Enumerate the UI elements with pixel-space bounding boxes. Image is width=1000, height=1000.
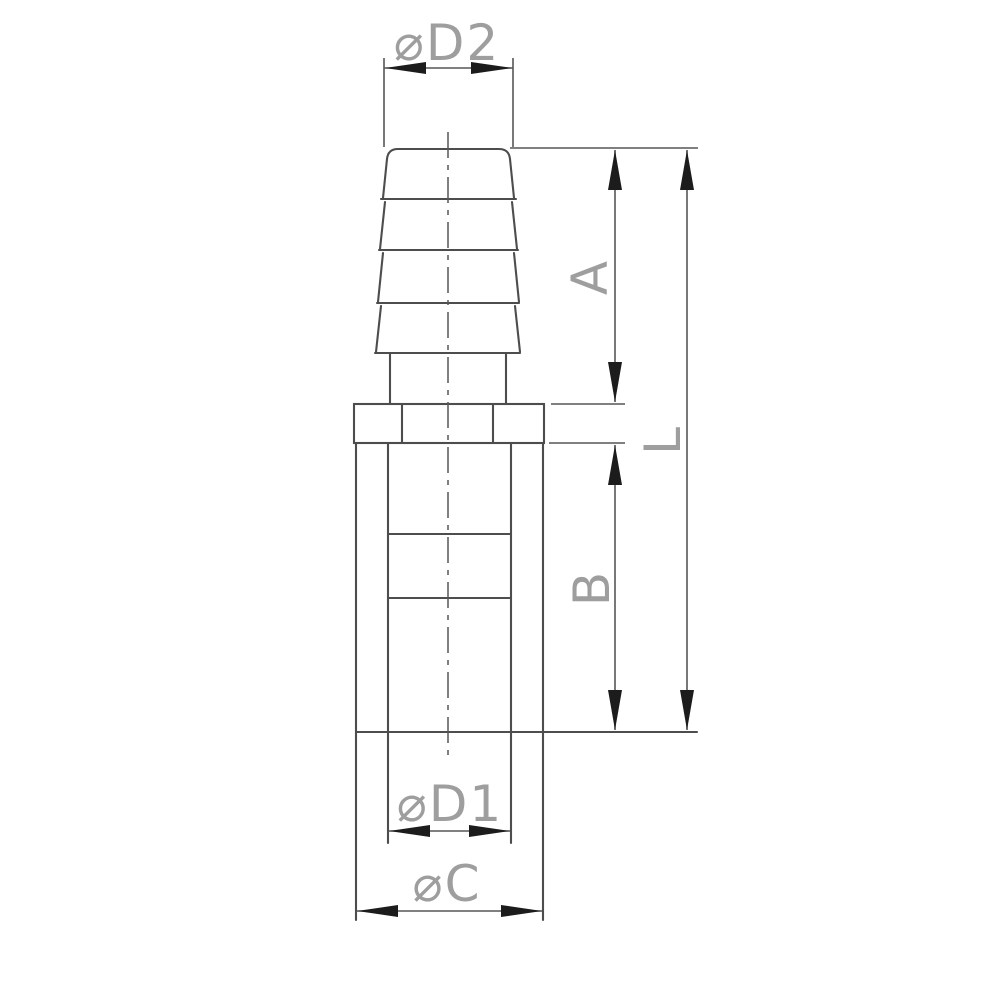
c-arrow-right <box>501 905 542 917</box>
dimension-b: B <box>563 445 622 730</box>
barb-4-side-right <box>515 306 520 352</box>
barb-2-side-right <box>512 202 517 249</box>
c-arrow-left <box>357 905 398 917</box>
a-arrow-up <box>608 150 622 190</box>
dimension-a: A <box>561 150 622 402</box>
barb-3-side-right <box>514 253 519 302</box>
dimension-l: L <box>634 150 694 730</box>
dimension-d2: ⌀D2 <box>384 14 513 147</box>
barb-4-side-left <box>376 306 381 352</box>
dimension-d1: ⌀D1 <box>389 775 510 837</box>
b-label: B <box>563 570 621 606</box>
l-label: L <box>634 425 692 455</box>
barb-2-side-left <box>380 202 385 249</box>
c-label: ⌀C <box>412 855 481 913</box>
flange-body <box>354 404 544 443</box>
l-arrow-up <box>680 150 694 190</box>
d1-label: ⌀D1 <box>397 775 503 833</box>
l-arrow-down <box>680 690 694 730</box>
b-arrow-up <box>608 445 622 485</box>
b-arrow-down <box>608 690 622 730</box>
a-label: A <box>561 259 619 295</box>
barb-3-side-left <box>378 253 383 302</box>
technical-drawing-page: ⌀D2 A L B <box>0 0 1000 1000</box>
dimension-c: ⌀C <box>357 855 542 917</box>
a-arrow-down <box>608 362 622 402</box>
hose-barb-fitting-drawing: ⌀D2 A L B <box>0 0 1000 1000</box>
d2-label: ⌀D2 <box>394 14 500 72</box>
